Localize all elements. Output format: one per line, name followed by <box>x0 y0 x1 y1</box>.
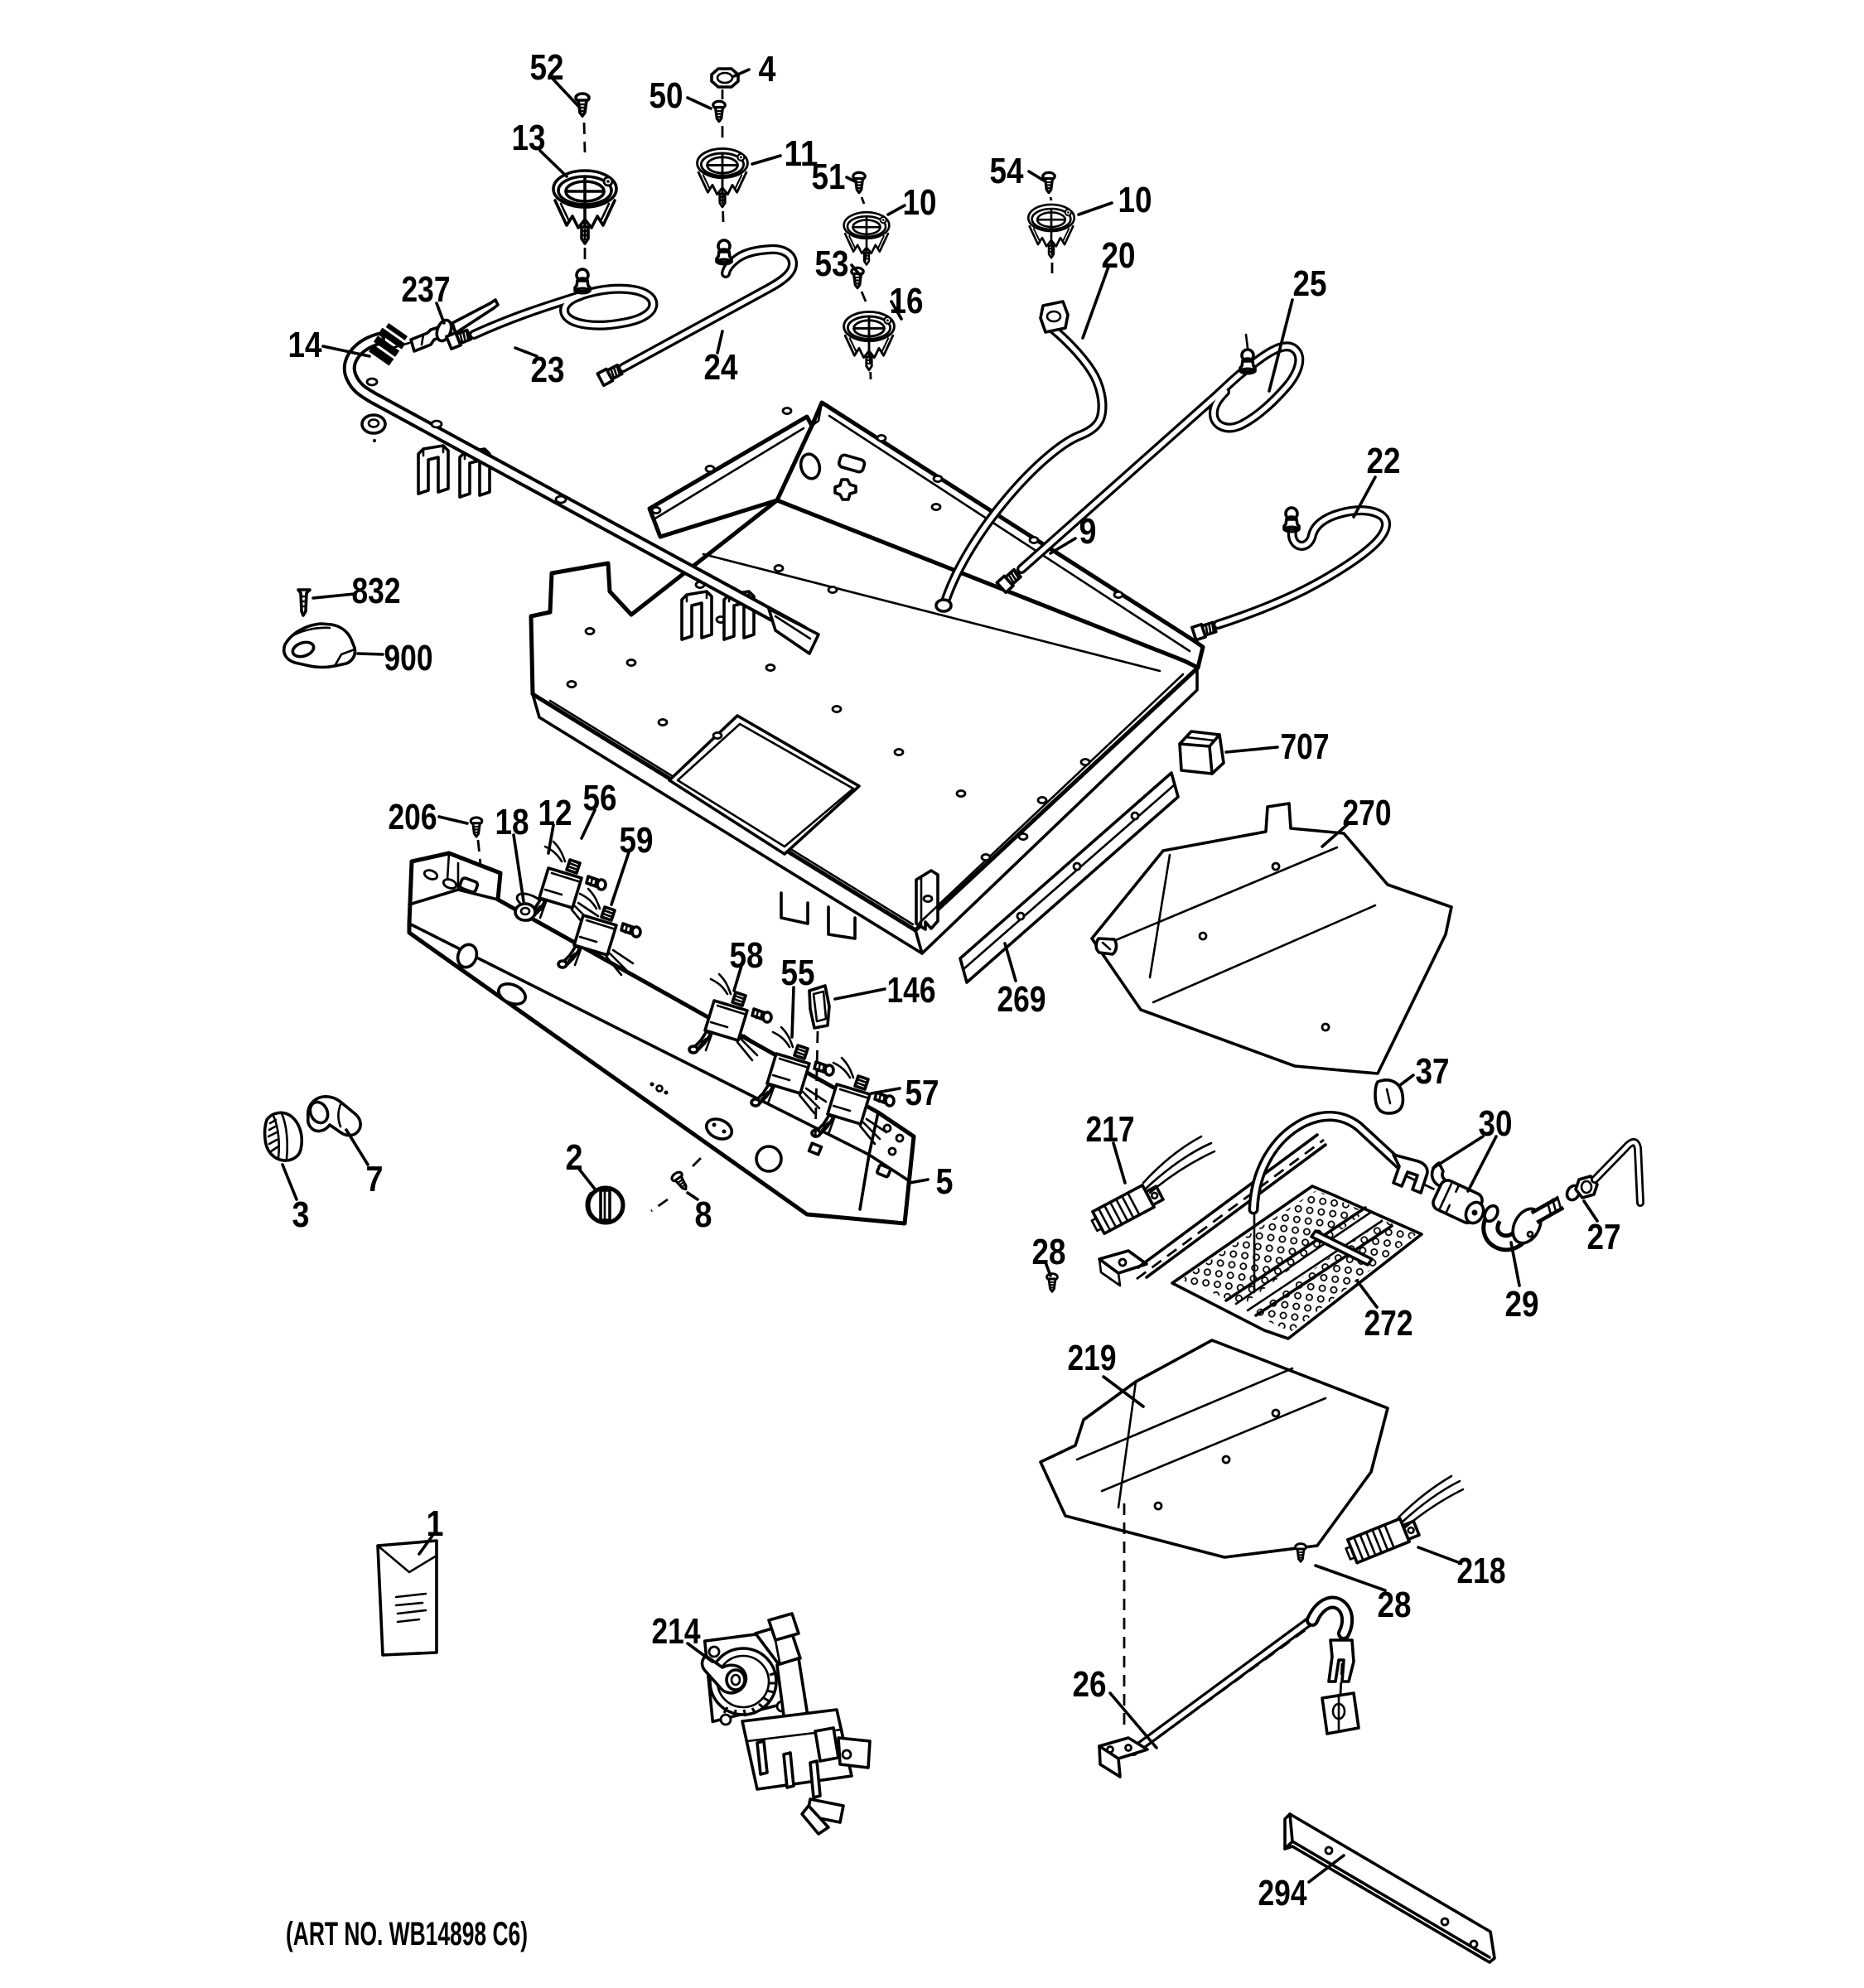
svg-text:218: 218 <box>1457 1551 1506 1591</box>
svg-text:294: 294 <box>1258 1873 1307 1913</box>
svg-text:270: 270 <box>1343 793 1392 833</box>
svg-text:20: 20 <box>1102 235 1136 276</box>
svg-text:24: 24 <box>704 347 738 388</box>
svg-text:55: 55 <box>781 953 815 993</box>
svg-text:217: 217 <box>1086 1109 1135 1150</box>
svg-text:54: 54 <box>990 151 1024 191</box>
svg-text:3: 3 <box>292 1194 310 1235</box>
svg-text:1: 1 <box>427 1503 444 1544</box>
svg-text:25: 25 <box>1293 263 1327 304</box>
svg-text:56: 56 <box>583 778 617 818</box>
svg-text:26: 26 <box>1073 1664 1107 1705</box>
svg-text:900: 900 <box>384 638 433 678</box>
svg-text:27: 27 <box>1587 1217 1621 1257</box>
svg-text:146: 146 <box>887 970 936 1011</box>
svg-text:10: 10 <box>1118 180 1152 220</box>
svg-text:52: 52 <box>530 47 564 88</box>
svg-text:14: 14 <box>288 325 322 365</box>
svg-text:57: 57 <box>905 1073 939 1113</box>
svg-text:58: 58 <box>730 935 764 976</box>
svg-text:13: 13 <box>512 118 546 158</box>
svg-text:269: 269 <box>997 979 1046 1020</box>
svg-text:51: 51 <box>812 157 846 197</box>
svg-text:16: 16 <box>890 281 924 321</box>
svg-text:7: 7 <box>366 1159 384 1199</box>
svg-text:707: 707 <box>1281 726 1330 767</box>
svg-text:53: 53 <box>815 244 849 284</box>
svg-text:4: 4 <box>759 49 776 89</box>
svg-text:23: 23 <box>531 350 565 390</box>
svg-text:2: 2 <box>566 1137 583 1178</box>
svg-text:10: 10 <box>903 182 937 223</box>
svg-text:832: 832 <box>352 571 401 611</box>
svg-text:37: 37 <box>1416 1051 1450 1092</box>
svg-text:28: 28 <box>1378 1585 1412 1625</box>
svg-text:272: 272 <box>1364 1303 1413 1344</box>
svg-text:59: 59 <box>620 820 654 861</box>
svg-text:28: 28 <box>1032 1232 1066 1272</box>
svg-text:219: 219 <box>1068 1338 1117 1378</box>
svg-text:30: 30 <box>1479 1103 1513 1144</box>
svg-text:5: 5 <box>936 1161 954 1202</box>
svg-text:12: 12 <box>538 793 572 833</box>
svg-text:29: 29 <box>1505 1284 1539 1325</box>
svg-text:214: 214 <box>652 1611 701 1652</box>
svg-text:9: 9 <box>1079 511 1097 552</box>
svg-text:50: 50 <box>650 75 683 116</box>
svg-text:22: 22 <box>1367 441 1401 481</box>
svg-text:(ART NO. WB14898 C6): (ART NO. WB14898 C6) <box>286 1916 528 1952</box>
svg-text:18: 18 <box>495 802 529 842</box>
svg-text:8: 8 <box>695 1194 712 1235</box>
svg-text:237: 237 <box>402 269 451 310</box>
svg-text:206: 206 <box>389 797 437 837</box>
